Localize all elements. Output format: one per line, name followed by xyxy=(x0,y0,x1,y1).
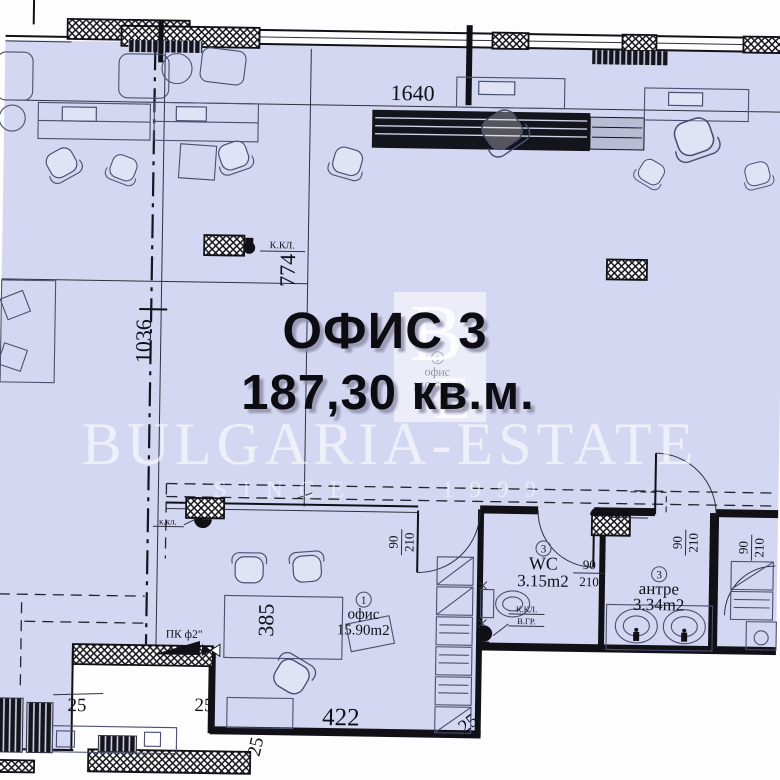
svg-text:15.90m2: 15.90m2 xyxy=(337,622,390,639)
kkl-label: к.кл. xyxy=(159,516,177,526)
dim-385: 385 xyxy=(253,603,279,636)
floorplan-screenshot: К.КЛ. xyxy=(0,0,780,780)
svg-text:3.15m2: 3.15m2 xyxy=(517,571,569,591)
radiator-icon xyxy=(98,735,136,752)
radiator-icon xyxy=(0,698,23,752)
dim-1640: 1640 xyxy=(390,80,434,106)
door-height: 210 xyxy=(579,574,599,589)
door-width: 90 xyxy=(386,535,401,548)
door-height: 210 xyxy=(401,532,416,552)
svg-text:3.34m2: 3.34m2 xyxy=(633,595,685,615)
door-height: 210 xyxy=(751,538,766,558)
kkl-label: К.КЛ. xyxy=(617,507,640,517)
svg-text:офис: офис xyxy=(347,606,379,623)
watermark-since: SINCE xyxy=(214,477,360,502)
kkl-label: К.КЛ. xyxy=(270,240,295,251)
radiator-icon xyxy=(592,50,668,65)
door-width: 90 xyxy=(583,557,596,572)
vgr-label: В.ГР. xyxy=(517,616,536,626)
floorplan-svg: К.КЛ. xyxy=(0,0,780,780)
door-width: 90 xyxy=(670,536,685,549)
watermark-year: 1999 xyxy=(442,477,552,502)
title-line1: ОФИС 3 xyxy=(282,302,487,359)
dim-422: 422 xyxy=(322,704,360,732)
door-height: 210 xyxy=(685,533,700,553)
door-width: 90 xyxy=(735,541,750,554)
title-line2: 187,30 кв.м. xyxy=(241,366,535,420)
dim-25: 25 xyxy=(194,695,213,716)
dim-1036: 1036 xyxy=(130,319,156,363)
radiator-icon xyxy=(128,40,202,53)
svg-text:1: 1 xyxy=(361,595,367,607)
pk-label: ПК ф2" xyxy=(166,629,203,642)
kkl-label: К.КЛ. xyxy=(516,604,538,614)
dim-774: 774 xyxy=(275,254,301,287)
radiator-icon xyxy=(26,702,53,752)
dim-25: 25 xyxy=(67,695,86,716)
